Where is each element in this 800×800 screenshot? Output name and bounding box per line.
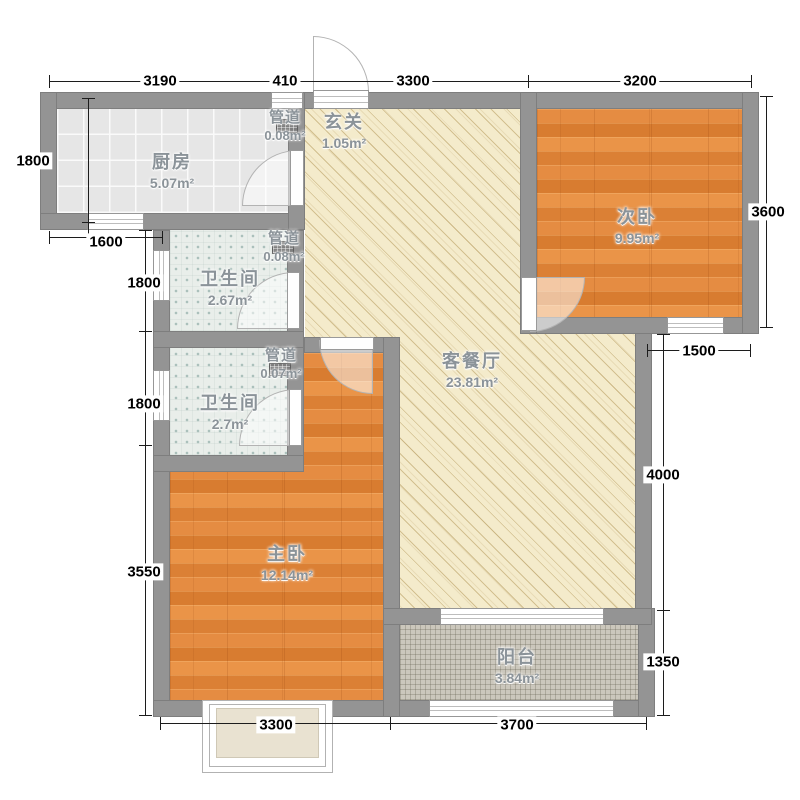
room-name: 主卧 (261, 543, 313, 566)
bathroom2-door (289, 389, 302, 446)
bathroom1-door (287, 272, 300, 329)
room-label-master: 主卧 12.14m² (261, 543, 313, 585)
room-area: 2.7m² (200, 416, 260, 434)
living-balcony-window (440, 608, 604, 625)
floor-plan: 厨房 5.07m² 管道 0.08m² 玄关 1.05m² 次卧 9.95m² … (0, 0, 800, 800)
wall-left-lower (153, 230, 170, 717)
dim-tick (139, 445, 152, 446)
room-area: 12.14m² (261, 567, 313, 585)
kitchen-window (87, 213, 144, 230)
dim-line-left-lower (145, 230, 146, 715)
room-area: 9.95m² (615, 230, 659, 248)
dim-tick (390, 717, 391, 730)
dim-top-4: 3200 (620, 72, 659, 89)
dim-right-1: 3600 (748, 203, 787, 220)
room-name: 厨房 (150, 151, 194, 174)
dim-left-2: 1600 (86, 233, 125, 250)
dim-top-1: 3190 (140, 72, 179, 89)
dim-tick (750, 344, 751, 357)
wall-master-right (383, 337, 400, 717)
duct-window (271, 92, 303, 109)
dim-tick (657, 334, 670, 335)
dim-line-bottom (160, 723, 646, 724)
dim-bottom-2: 3700 (497, 716, 536, 733)
dim-tick (160, 717, 161, 730)
room-label-bedroom2: 次卧 9.95m² (615, 206, 659, 248)
dim-tick (751, 75, 752, 88)
dim-top-3: 3300 (393, 72, 432, 89)
dim-tick (82, 222, 95, 223)
room-name: 次卧 (615, 206, 659, 229)
room-area: 2.67m² (200, 292, 260, 310)
wall-bath2-bottom (153, 455, 304, 472)
dim-left-5: 3550 (124, 563, 163, 580)
room-label-living: 客餐厅 23.81m² (442, 350, 502, 392)
dim-tick (162, 231, 163, 244)
dim-tick (139, 230, 152, 231)
room-name: 阳台 (495, 646, 539, 669)
entry-door-arc (313, 36, 369, 92)
room-name: 管道 (260, 346, 301, 366)
dim-tick (646, 717, 647, 730)
bedroom2-window (667, 317, 724, 334)
room-label-duct-bath1: 管道 0.08m² (263, 229, 304, 265)
dim-tick (528, 75, 529, 88)
room-name: 管道 (264, 108, 305, 128)
dim-right-4: 1350 (643, 653, 682, 670)
room-area: 3.84m² (495, 670, 539, 688)
dim-line-left-kitchen (88, 98, 89, 237)
dim-tick (139, 331, 152, 332)
dim-tick (49, 75, 50, 88)
dim-left-4: 1800 (124, 395, 163, 412)
bedroom2-door (521, 277, 537, 331)
wall-kitchen-bottom (40, 213, 305, 230)
room-name: 管道 (263, 229, 304, 249)
room-label-balcony: 阳台 3.84m² (495, 646, 539, 688)
dim-tick (657, 715, 670, 716)
dim-right-3: 4000 (643, 466, 682, 483)
room-area: 23.81m² (442, 374, 502, 392)
room-label-bathroom1: 卫生间 2.67m² (200, 268, 260, 310)
dim-tick (82, 98, 95, 99)
room-name: 玄关 (322, 111, 366, 134)
room-area: 0.08m² (263, 248, 304, 265)
room-label-kitchen: 厨房 5.07m² (150, 151, 194, 193)
room-area: 0.08m² (264, 127, 305, 144)
room-name: 卫生间 (200, 392, 260, 415)
dim-right-2: 1500 (679, 342, 718, 359)
dim-bottom-1: 3300 (256, 716, 295, 733)
room-label-duct-kitchen: 管道 0.08m² (264, 108, 305, 144)
dim-left-3: 1800 (124, 274, 163, 291)
kitchen-door (290, 150, 304, 206)
room-label-duct-bath2: 管道 0.07m² (260, 346, 301, 382)
room-area: 1.05m² (322, 135, 366, 153)
room-area: 5.07m² (150, 175, 194, 193)
dim-tick (760, 96, 773, 97)
balcony-window (429, 700, 614, 717)
room-label-entry: 玄关 1.05m² (322, 111, 366, 153)
dim-top-2: 410 (269, 72, 300, 89)
room-area: 0.07m² (260, 365, 301, 382)
dim-left-1: 1800 (13, 152, 52, 169)
room-name: 客餐厅 (442, 350, 502, 373)
room-name: 卫生间 (200, 268, 260, 291)
room-label-bathroom2: 卫生间 2.7m² (200, 392, 260, 434)
wall-top (40, 92, 759, 109)
dim-tick (760, 327, 773, 328)
master-door (320, 337, 374, 350)
entry-door (313, 90, 369, 109)
dim-tick (49, 231, 50, 244)
dim-tick (647, 344, 648, 357)
dim-tick (139, 715, 152, 716)
